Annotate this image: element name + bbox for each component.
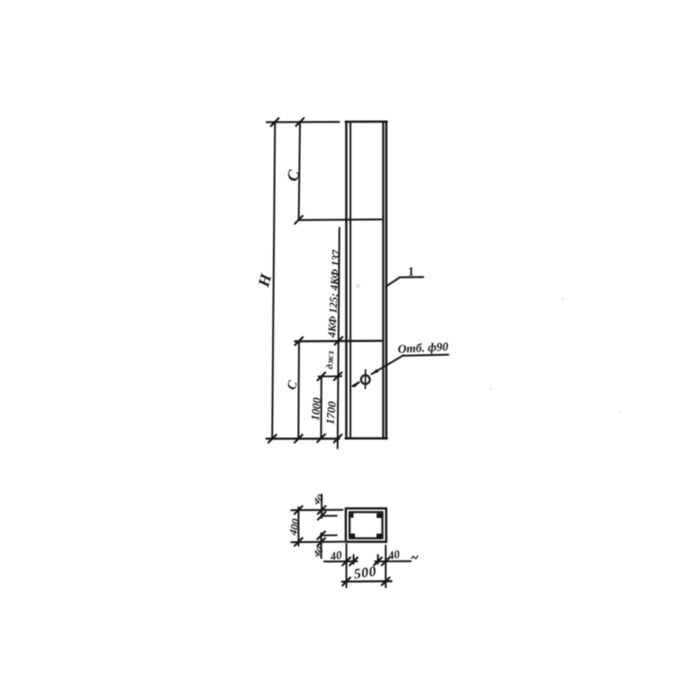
svg-text:1: 1	[407, 264, 415, 279]
svg-text:1700: 1700	[325, 401, 339, 425]
svg-text:500: 500	[353, 565, 378, 583]
svg-text:C: C	[284, 168, 303, 183]
svg-text:4КФ 125; 4КФ 137: 4КФ 125; 4КФ 137	[326, 249, 343, 339]
svg-text:40: 40	[386, 549, 401, 563]
svg-text:1000: 1000	[310, 397, 324, 421]
svg-text:джз: джз	[324, 350, 336, 369]
svg-text:40: 40	[311, 493, 327, 509]
svg-text:400: 400	[287, 517, 302, 537]
svg-text:Отб. ф90: Отб. ф90	[397, 339, 448, 356]
svg-text:C: C	[283, 378, 300, 391]
svg-text:40: 40	[311, 545, 326, 560]
svg-text:40: 40	[328, 550, 343, 564]
svg-text:H: H	[255, 272, 275, 290]
